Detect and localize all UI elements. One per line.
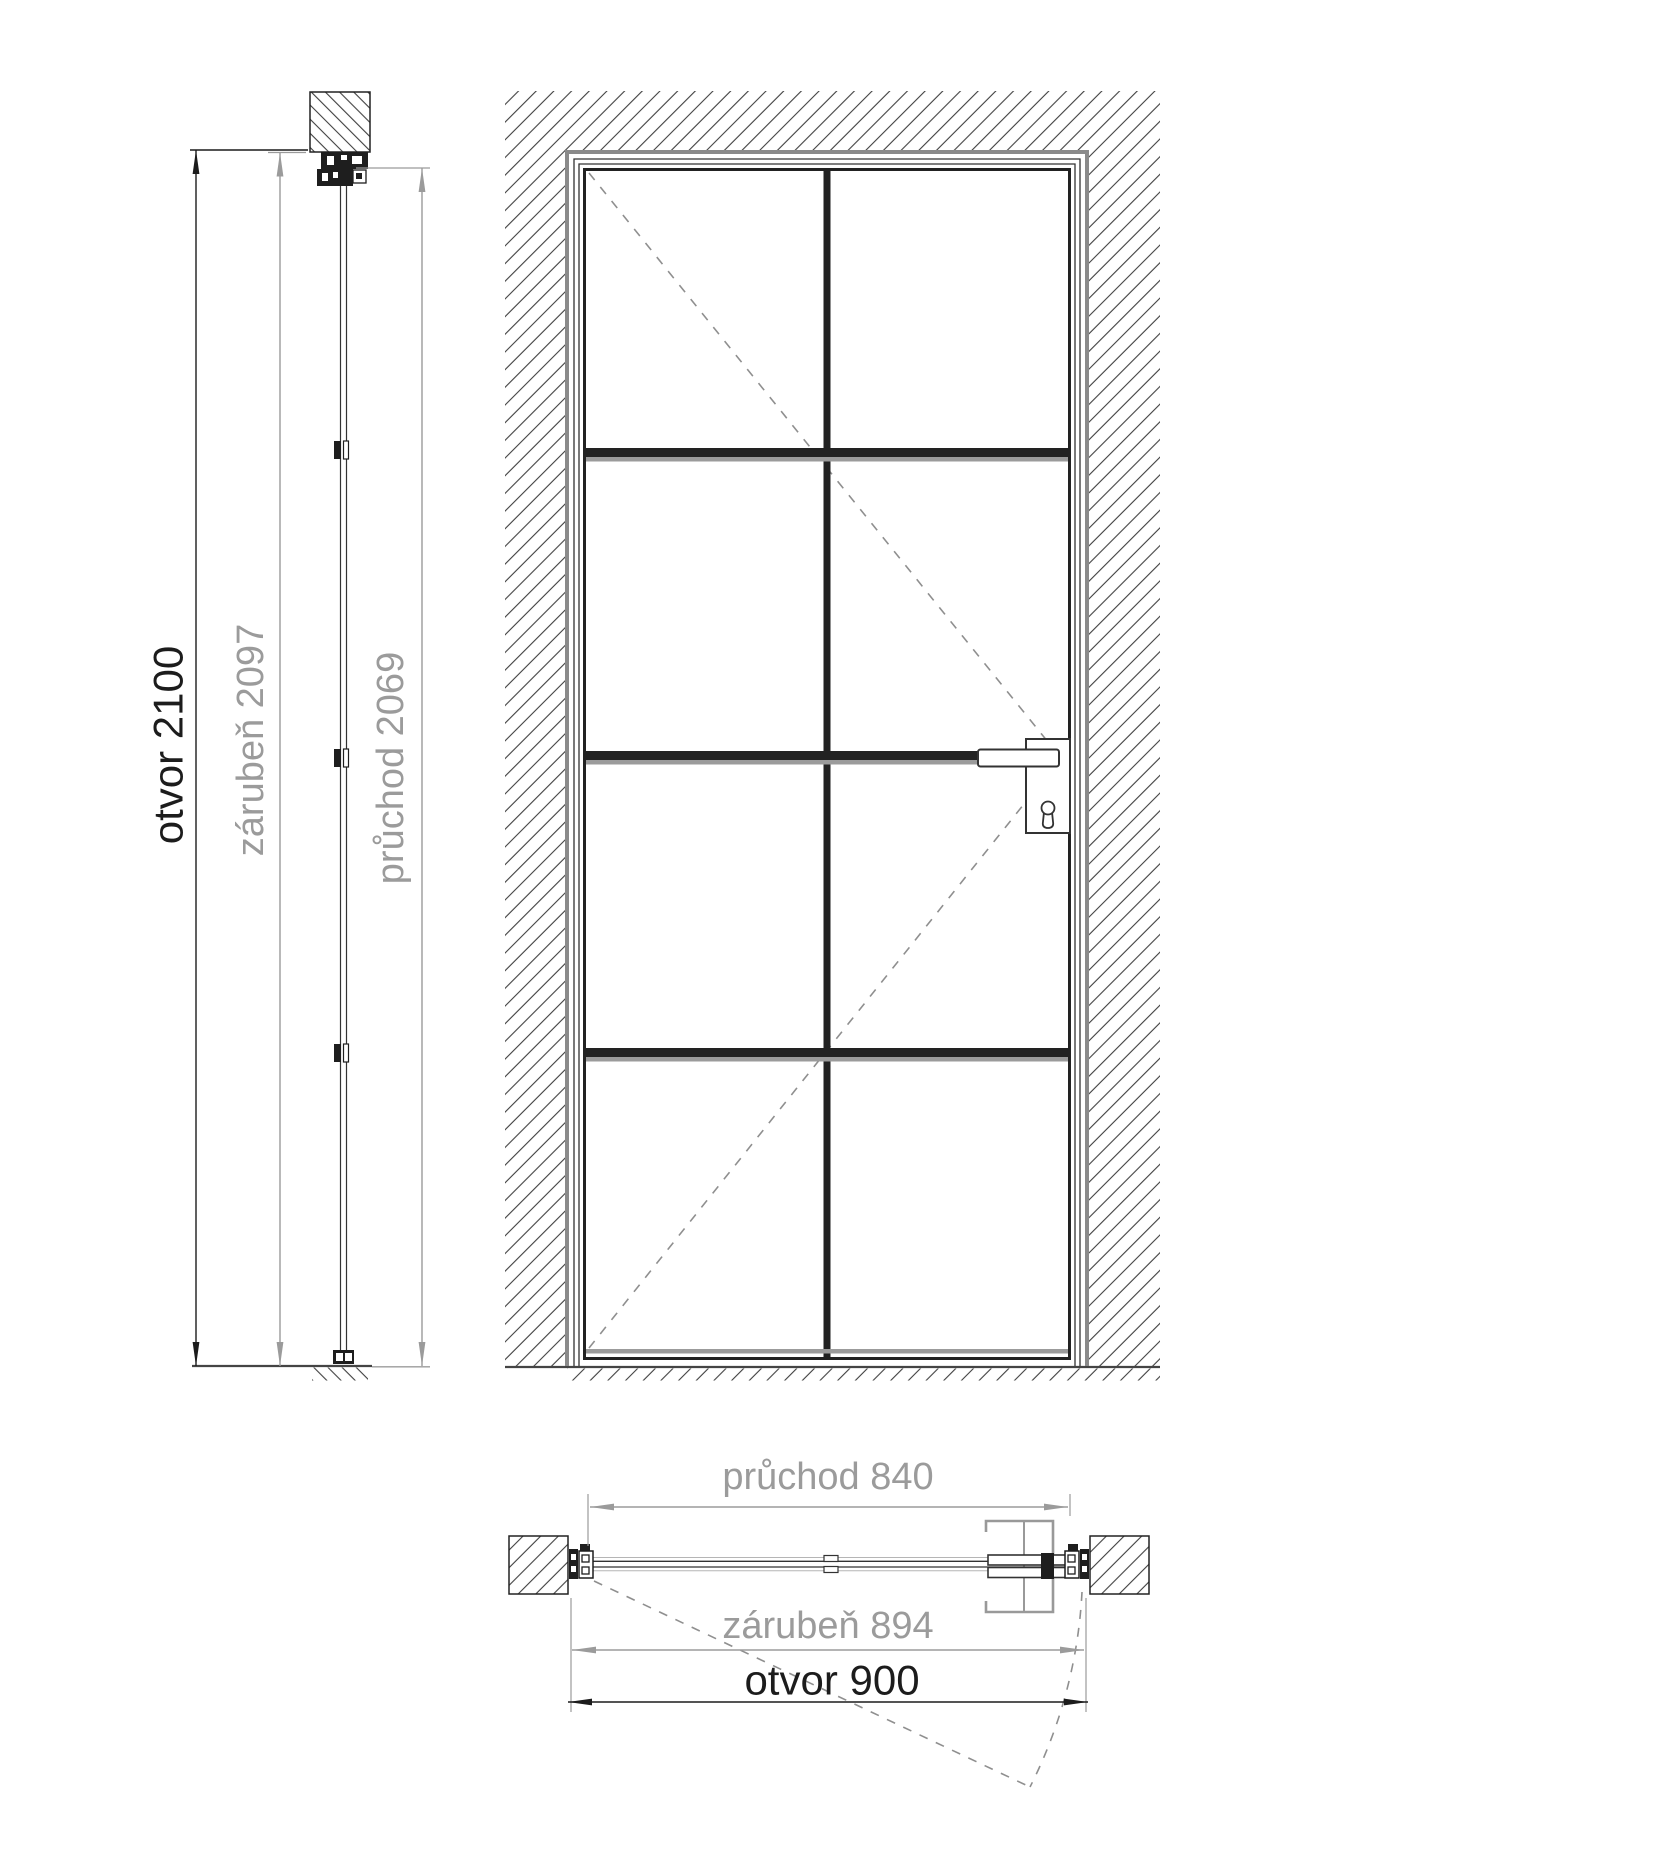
dim-label-otvor-2100: otvor 2100 xyxy=(145,646,192,844)
section-rail-mark xyxy=(334,749,349,767)
section-rail-mark xyxy=(334,441,349,459)
dim-label-otvor-900: otvor 900 xyxy=(744,1657,919,1704)
front-rail xyxy=(586,1048,1068,1062)
plan-frame-profile-hinge xyxy=(569,1544,593,1579)
plan-wall-block-left xyxy=(509,1536,568,1594)
section-top-frame-profile xyxy=(317,152,368,186)
front-floor-hatch xyxy=(567,1369,1160,1381)
front-elevation-view xyxy=(505,91,1160,1381)
section-rail-mark xyxy=(334,1044,349,1062)
door-technical-drawing-page: otvor 2100 zárubeň 2097 průchod 2069 xyxy=(0,0,1654,1861)
section-bottom-pivot xyxy=(333,1350,354,1364)
plan-mullion-mark xyxy=(824,1567,838,1573)
section-floor-hatch xyxy=(312,1368,368,1381)
dim-label-zaruben-2097: zárubeň 2097 xyxy=(230,624,272,856)
plan-frame-profile-latch xyxy=(1065,1544,1089,1579)
dim-otvor-2100: otvor 2100 xyxy=(145,150,309,1366)
dim-zaruben-2097: zárubeň 2097 xyxy=(230,153,306,1367)
dim-label-pruchod-2069: průchod 2069 xyxy=(370,652,412,884)
section-door-leaf xyxy=(341,186,347,1350)
section-wall-block-top xyxy=(310,92,370,152)
dim-label-zaruben-894: zárubeň 894 xyxy=(722,1605,933,1647)
handle-lever xyxy=(978,750,1059,767)
dim-label-pruchod-840: průchod 840 xyxy=(722,1456,933,1498)
horizontal-plan-view: průchod 840 zárubeň 894 otvor 900 xyxy=(509,1456,1149,1787)
dim-pruchod-2069: průchod 2069 xyxy=(356,168,430,1366)
plan-mullion-mark xyxy=(824,1556,838,1562)
front-bottom-shadow xyxy=(586,1349,1068,1354)
door-technical-drawing: otvor 2100 zárubeň 2097 průchod 2069 xyxy=(0,0,1654,1861)
vertical-section-view: otvor 2100 zárubeň 2097 průchod 2069 xyxy=(145,92,431,1381)
front-rail xyxy=(586,448,1068,462)
dim-otvor-900: otvor 900 xyxy=(568,1657,1088,1704)
plan-wall-block-right xyxy=(1090,1536,1149,1594)
dim-pruchod-840: průchod 840 xyxy=(590,1456,1068,1507)
keyhole xyxy=(1042,802,1055,829)
